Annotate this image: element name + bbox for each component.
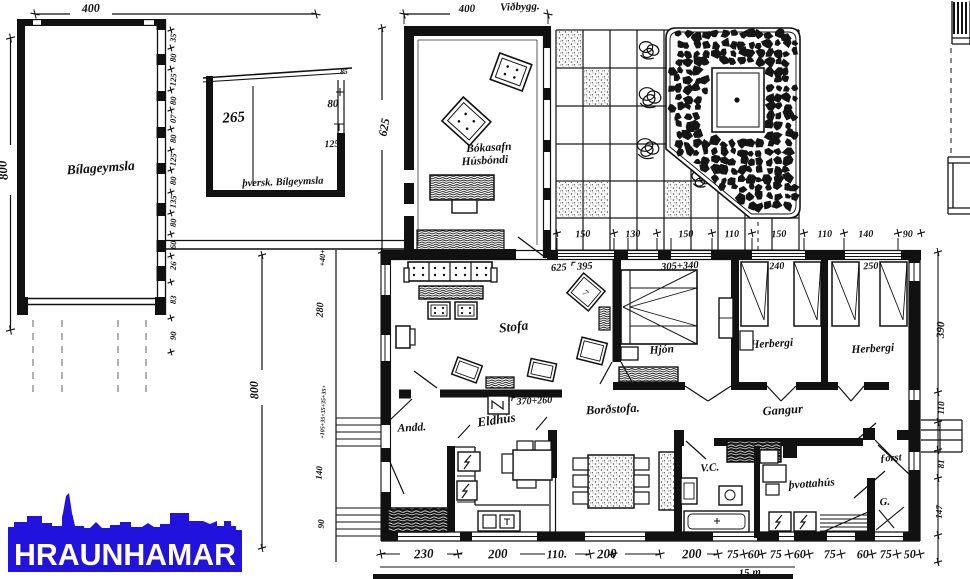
svg-text:90: 90 [168, 330, 179, 340]
svg-text:135: 135 [167, 194, 178, 208]
svg-text:85: 85 [340, 67, 348, 76]
svg-text:110: 110 [817, 229, 832, 241]
svg-text:80: 80 [327, 98, 339, 110]
svg-text:125: 125 [324, 139, 339, 151]
svg-text:60: 60 [793, 547, 806, 562]
svg-text:⌜ 370+260: ⌜ 370+260 [509, 395, 552, 408]
svg-text:280: 280 [315, 302, 327, 318]
svg-text:Andd.: Andd. [396, 421, 426, 435]
svg-text:50: 50 [903, 547, 916, 562]
svg-text:200: 200 [596, 545, 618, 561]
svg-text:80: 80 [168, 52, 179, 62]
svg-text:80: 80 [168, 217, 179, 227]
svg-text:125: 125 [167, 152, 178, 166]
svg-text:26: 26 [168, 260, 179, 271]
svg-text:80: 80 [168, 95, 179, 105]
svg-text:60: 60 [747, 547, 760, 562]
svg-text:Stofa: Stofa [498, 318, 529, 336]
svg-text:+40+: +40+ [318, 249, 328, 267]
svg-text:Borðstofa.: Borðstofa. [585, 401, 640, 418]
svg-text:75: 75 [823, 547, 836, 562]
svg-text:625 ⌜ 395: 625 ⌜ 395 [551, 260, 593, 274]
svg-text:Herbergi: Herbergi [749, 337, 794, 351]
svg-text:35: 35 [168, 32, 179, 43]
svg-text:V.C.: V.C. [700, 461, 720, 474]
svg-text:90: 90 [903, 229, 914, 241]
svg-text:Gangur: Gangur [762, 402, 803, 419]
svg-text:200: 200 [681, 545, 703, 561]
svg-text:147: 147 [934, 504, 944, 518]
svg-text:140: 140 [314, 465, 324, 479]
svg-text:390: 390 [935, 321, 948, 339]
svg-text:200: 200 [487, 545, 509, 561]
svg-text:800: 800 [0, 160, 11, 181]
svg-text:90: 90 [316, 519, 326, 529]
svg-text:150: 150 [678, 229, 694, 241]
svg-text:Hjón: Hjón [648, 343, 674, 357]
svg-text:150: 150 [575, 229, 591, 241]
svg-text:75: 75 [726, 547, 739, 562]
svg-text:HRAUNHAMAR: HRAUNHAMAR [14, 537, 236, 572]
svg-text:ƒorst: ƒorst [880, 452, 903, 465]
svg-text:75: 75 [769, 547, 782, 562]
svg-text:15 m: 15 m [738, 566, 762, 579]
svg-text:Viðbygg.: Viðbygg. [500, 0, 540, 13]
svg-text:230: 230 [413, 545, 435, 561]
svg-text:Herbergi: Herbergi [850, 342, 895, 356]
svg-text:265: 265 [221, 109, 246, 127]
svg-text:81: 81 [936, 459, 946, 468]
svg-text:250: 250 [862, 261, 879, 273]
svg-text:83: 83 [168, 294, 179, 304]
svg-text:130: 130 [625, 229, 641, 241]
svg-text:80: 80 [168, 175, 179, 185]
svg-text:110.: 110. [546, 546, 567, 561]
svg-text:110: 110 [936, 401, 946, 415]
svg-text:240: 240 [768, 261, 785, 273]
svg-text:80: 80 [168, 133, 179, 143]
svg-text:G.: G. [879, 497, 890, 509]
svg-text:Húsbóndi: Húsbóndi [460, 154, 509, 169]
svg-text:60: 60 [856, 547, 869, 562]
svg-text:140: 140 [858, 229, 874, 241]
svg-text:150: 150 [771, 229, 787, 241]
svg-text:400: 400 [457, 3, 475, 16]
svg-text:07: 07 [168, 113, 179, 123]
svg-text:110: 110 [724, 229, 739, 241]
svg-text:400: 400 [80, 1, 100, 16]
svg-text:75: 75 [879, 547, 892, 562]
svg-text:800: 800 [247, 381, 262, 399]
svg-text:125: 125 [167, 72, 178, 86]
